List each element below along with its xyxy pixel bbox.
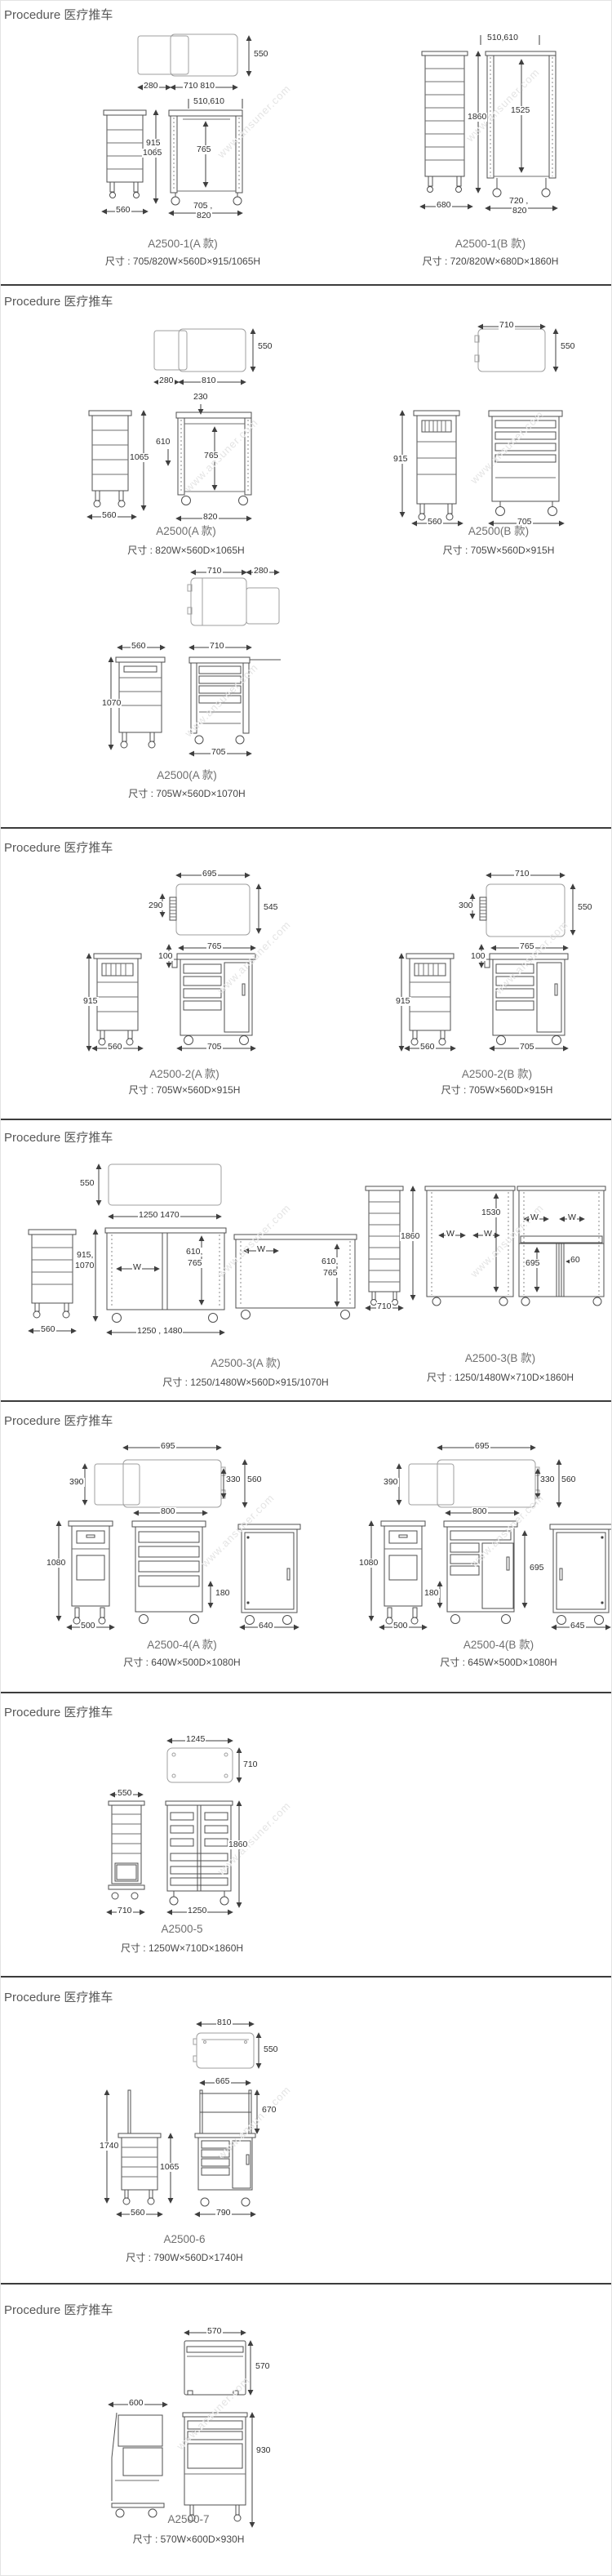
dim-label: 800 bbox=[160, 1507, 176, 1516]
section-header: Procedure 医疗推车 bbox=[4, 1703, 113, 1720]
a2500-3b-drawing bbox=[364, 1145, 612, 1345]
section-2: Procedure 医疗推车 www.ansuner.com www.ansun… bbox=[1, 284, 612, 829]
dim-label: 1530 bbox=[481, 1208, 501, 1217]
figure-a2500-4a: 695 390 330 560 800 1080 180 500 640 A25… bbox=[46, 1435, 315, 1680]
product-name: A2500-6 bbox=[99, 2233, 270, 2245]
dim-label: 610 bbox=[155, 438, 171, 447]
dim-label: 1245 bbox=[185, 1735, 206, 1744]
dim-label: 1250 , 1480 bbox=[136, 1327, 183, 1336]
product-name: A2500-1(B 款) bbox=[409, 234, 572, 251]
product-size: 尺寸 : 1250/1480W×710D×1860H bbox=[378, 1370, 612, 1384]
dim-label: 560 bbox=[561, 1475, 577, 1484]
figure-a2500-1a: 550 280 710 810 510,610 915 1065 765 560… bbox=[97, 25, 273, 280]
dim-label: 280 bbox=[143, 82, 159, 91]
dim-label: 710 bbox=[499, 321, 515, 330]
figure-a2500-2a: 695 290 545 765 100 915 560 705 A2500-2(… bbox=[82, 861, 274, 1106]
section-7: Procedure 医疗推车 www.ansuner.com bbox=[1, 1976, 612, 2285]
dim-label: 610, bbox=[185, 1248, 203, 1257]
dim-label: 180 bbox=[215, 1589, 231, 1598]
dim-label: 610, bbox=[321, 1257, 339, 1266]
dim-label: 560 bbox=[419, 1043, 436, 1052]
dim-label: 330 bbox=[225, 1475, 242, 1484]
dim-label: 710 bbox=[242, 1760, 259, 1769]
dim-label: 820 bbox=[196, 211, 212, 220]
dim-label: 695 bbox=[529, 1564, 545, 1573]
dim-label: 710 810 bbox=[183, 82, 215, 91]
product-name: A2500(A 款) bbox=[104, 522, 268, 538]
dim-label: 645 bbox=[570, 1622, 586, 1631]
dim-label: 710 bbox=[117, 1906, 133, 1915]
dim-label: 1070 bbox=[101, 699, 122, 708]
section-header: Procedure 医疗推车 bbox=[4, 1412, 113, 1429]
figure-a2500-2b: 710 300 550 765 100 915 560 705 A2500-2(… bbox=[395, 861, 587, 1106]
dim-label: 695 bbox=[474, 1442, 490, 1451]
dim-label: 765 bbox=[203, 452, 220, 460]
dim-label: 765 bbox=[322, 1269, 339, 1278]
a2500-2b-drawing bbox=[395, 861, 587, 1061]
section-header: Procedure 医疗推车 bbox=[4, 2301, 113, 2318]
dim-label: 695 bbox=[202, 870, 218, 879]
dim-label: 765 bbox=[187, 1259, 203, 1268]
dim-label: 695 bbox=[525, 1259, 541, 1268]
product-name: A2500-2(A 款) bbox=[103, 1065, 266, 1081]
product-size: 尺寸 : 705W×560D×1070H bbox=[64, 786, 309, 800]
product-name: A2500(B 款) bbox=[417, 522, 580, 538]
dim-label: 1070 bbox=[74, 1261, 95, 1270]
dim-label: 550 bbox=[117, 1789, 133, 1798]
dim-label: 915 bbox=[395, 997, 411, 1006]
dim-label: 1080 bbox=[358, 1559, 379, 1568]
dim-label: 300 bbox=[458, 901, 474, 910]
dim-label: 290 bbox=[148, 901, 164, 910]
dim-label: 705 , bbox=[193, 202, 213, 211]
dim-label: 100 bbox=[470, 952, 486, 961]
dim-label: 560 bbox=[101, 511, 118, 520]
dim-label: 1250 1470 bbox=[138, 1211, 180, 1220]
product-size: 尺寸 : 720/820W×680D×1860H bbox=[384, 254, 596, 268]
dim-label: 550 bbox=[560, 342, 576, 351]
section-header: Procedure 医疗推车 bbox=[4, 1988, 113, 2005]
dim-label: 330 bbox=[539, 1475, 556, 1484]
dim-label: 390 bbox=[383, 1478, 399, 1487]
dim-label: 545 bbox=[263, 903, 279, 912]
product-name: A2500-5 bbox=[100, 1923, 264, 1935]
section-header: Procedure 医疗推车 bbox=[4, 839, 113, 856]
dim-label: 915, bbox=[76, 1251, 94, 1260]
dim-label: 1250 bbox=[187, 1906, 207, 1915]
product-size: 尺寸 : 705W×560D×915H bbox=[375, 1083, 612, 1097]
dim-label: 560 bbox=[40, 1325, 56, 1334]
section-8: Procedure 医疗推车 www.ansuner.com bbox=[1, 2283, 612, 2576]
dim-label: 790 bbox=[215, 2209, 232, 2218]
catalog-page: Procedure 医疗推车 www.ansuner.com www.ansun… bbox=[0, 0, 612, 2576]
a2500-6-drawing bbox=[99, 2014, 372, 2227]
dim-label: 560 bbox=[107, 1043, 123, 1052]
product-size: 尺寸 : 705W×560D×915H bbox=[62, 1083, 307, 1097]
dim-label: 180 bbox=[424, 1589, 440, 1598]
product-name: A2500-1(A 款) bbox=[101, 234, 264, 251]
dim-label: 765 bbox=[196, 145, 212, 154]
dim-label: 550 bbox=[577, 903, 593, 912]
product-size: 尺寸 : 705/820W×560D×915/1065H bbox=[77, 254, 289, 268]
product-name: A2500-7 bbox=[107, 2513, 270, 2525]
a2500-4b-drawing bbox=[360, 1435, 612, 1639]
dim-label: 670 bbox=[261, 2106, 277, 2115]
product-name: A2500-3(A 款) bbox=[164, 1354, 327, 1370]
dim-label: 60 bbox=[570, 1256, 581, 1265]
dim-label: 230 bbox=[193, 393, 209, 402]
dim-label: 710 bbox=[376, 1302, 392, 1311]
dim-label: 820 bbox=[512, 207, 528, 216]
product-size: 尺寸 : 705W×560D×915H bbox=[376, 543, 612, 557]
dim-label: 765 bbox=[519, 942, 535, 951]
dim-label: 915 bbox=[392, 455, 409, 464]
a2500-4a-drawing bbox=[46, 1435, 315, 1639]
figure-a2500b-915: 710 550 915 560 705 A2500(B 款) 尺寸 : 705W… bbox=[391, 323, 583, 567]
dim-label: 915 bbox=[145, 139, 162, 148]
dim-label: 915 bbox=[82, 997, 99, 1006]
product-size: 尺寸 : 820W×560D×1065H bbox=[64, 543, 308, 557]
section-header: Procedure 医疗推车 bbox=[4, 1128, 113, 1146]
dim-label: 550 bbox=[79, 1179, 95, 1188]
dim-label: 560 bbox=[131, 642, 147, 651]
dim-label: 500 bbox=[392, 1622, 409, 1631]
dim-label: 550 bbox=[263, 2045, 279, 2054]
section-header: Procedure 医疗推车 bbox=[4, 292, 113, 309]
dim-label: 280 bbox=[253, 567, 269, 576]
dim-label: 1525 bbox=[510, 106, 530, 115]
dim-label: 1080 bbox=[46, 1559, 66, 1568]
dim-label: 1065 bbox=[142, 149, 162, 158]
product-name: A2500(A 款) bbox=[105, 766, 268, 782]
dim-label: 705 bbox=[211, 748, 227, 757]
a2500a-1070-drawing bbox=[103, 555, 295, 767]
dim-label: 765 bbox=[206, 942, 223, 951]
dim-label: 500 bbox=[80, 1622, 96, 1631]
dim-label: W bbox=[483, 1230, 493, 1239]
dim-label: W bbox=[567, 1213, 577, 1222]
dim-label: 280 bbox=[158, 376, 175, 385]
a2500-3a-drawing bbox=[25, 1145, 368, 1345]
figure-a2500-1b: 510,610 1860 1525 680 720 , 820 A2500-1(… bbox=[399, 25, 579, 280]
dim-label: 665 bbox=[215, 2077, 231, 2086]
dim-label: 510,610 bbox=[193, 97, 225, 106]
dim-label: W bbox=[530, 1213, 539, 1222]
dim-label: W bbox=[446, 1230, 455, 1239]
product-name: A2500-4(A 款) bbox=[100, 1635, 264, 1652]
figure-a2500-5: 1245 710 550 1860 710 1250 A2500-5 尺寸 : … bbox=[99, 1718, 368, 1963]
product-size: 尺寸 : 645W×500D×1080H bbox=[376, 1655, 612, 1669]
section-5: Procedure 医疗推车 www.ansuner.com www.ansun… bbox=[1, 1400, 612, 1693]
dim-label: 1065 bbox=[129, 453, 149, 462]
a2500-5-drawing bbox=[99, 1718, 368, 1922]
figure-a2500-3a: 550 1250 1470 915, 1070 W 610, 765 560 1… bbox=[25, 1145, 368, 1402]
product-size: 尺寸 : 1250W×710D×1860H bbox=[60, 1941, 304, 1955]
dim-label: 810 bbox=[216, 2018, 233, 2027]
dim-label: 560 bbox=[246, 1475, 263, 1484]
product-size: 尺寸 : 1250/1480W×560D×915/1070H bbox=[123, 1375, 368, 1389]
dim-label: 1065 bbox=[159, 2163, 180, 2172]
section-header: Procedure 医疗推车 bbox=[4, 6, 113, 23]
dim-label: 705 bbox=[519, 1043, 535, 1052]
product-size: 尺寸 : 640W×500D×1080H bbox=[60, 1655, 304, 1669]
dim-label: W bbox=[256, 1245, 266, 1254]
dim-label: 640 bbox=[258, 1622, 274, 1631]
dim-label: 695 bbox=[160, 1442, 176, 1451]
figure-a2500-3b: 1860 710 1530 W W W W 695 60 A2500-3(B 款… bbox=[364, 1145, 612, 1402]
dim-label: 930 bbox=[255, 2446, 272, 2455]
dim-label: 560 bbox=[130, 2209, 146, 2218]
figure-a2500a-1065: 550 280 810 230 610 765 1065 560 820 A25… bbox=[78, 323, 270, 567]
dim-label: 680 bbox=[436, 201, 452, 210]
dim-label: 570 bbox=[206, 2327, 223, 2336]
dim-label: 1860 bbox=[400, 1232, 420, 1241]
dim-label: 100 bbox=[157, 952, 174, 961]
section-6: Procedure 医疗推车 www.ansuner.com bbox=[1, 1692, 612, 1978]
dim-label: 710 bbox=[514, 870, 530, 879]
dim-label: 810 bbox=[201, 376, 217, 385]
section-3: Procedure 医疗推车 www.ansuner.com www.ansun… bbox=[1, 827, 612, 1120]
dim-label: 600 bbox=[128, 2399, 144, 2408]
product-name: A2500-4(B 款) bbox=[417, 1635, 580, 1652]
dim-label: 390 bbox=[69, 1478, 85, 1487]
figure-a2500a-1070: 710 280 560 710 1070 705 A2500(A 款) 尺寸 :… bbox=[103, 555, 295, 825]
dim-label: 820 bbox=[202, 513, 219, 522]
dim-label: 1860 bbox=[228, 1840, 248, 1849]
product-name: A2500-2(B 款) bbox=[415, 1065, 579, 1081]
dim-label: 560 bbox=[115, 206, 131, 215]
dim-label: W bbox=[132, 1263, 142, 1272]
dim-label: 710 bbox=[209, 642, 225, 651]
section-4: Procedure 医疗推车 www.ansuner.com www.ansun… bbox=[1, 1119, 612, 1402]
dim-label: 570 bbox=[255, 2362, 271, 2371]
a2500-7-drawing bbox=[107, 2325, 335, 2538]
section-1: Procedure 医疗推车 www.ansuner.com www.ansun… bbox=[1, 1, 612, 284]
dim-label: 705 bbox=[206, 1043, 223, 1052]
dim-label: 1740 bbox=[99, 2142, 119, 2151]
product-name: A2500-3(B 款) bbox=[419, 1349, 582, 1365]
product-size: 尺寸 : 790W×560D×1740H bbox=[62, 2250, 307, 2264]
dim-label: 720 , bbox=[508, 197, 529, 206]
figure-a2500-7: 570 570 600 930 A2500-7 尺寸 : 570W×600D×9… bbox=[107, 2325, 335, 2562]
dim-label: 800 bbox=[472, 1507, 488, 1516]
product-size: 尺寸 : 570W×600D×930H bbox=[66, 2532, 311, 2546]
dim-label: 710 bbox=[206, 567, 223, 576]
a2500b-915-drawing bbox=[391, 323, 583, 535]
dim-label: 550 bbox=[253, 50, 269, 59]
dim-label: 510,610 bbox=[486, 33, 519, 42]
dim-label: 1860 bbox=[467, 113, 487, 122]
dim-label: 550 bbox=[257, 342, 273, 351]
